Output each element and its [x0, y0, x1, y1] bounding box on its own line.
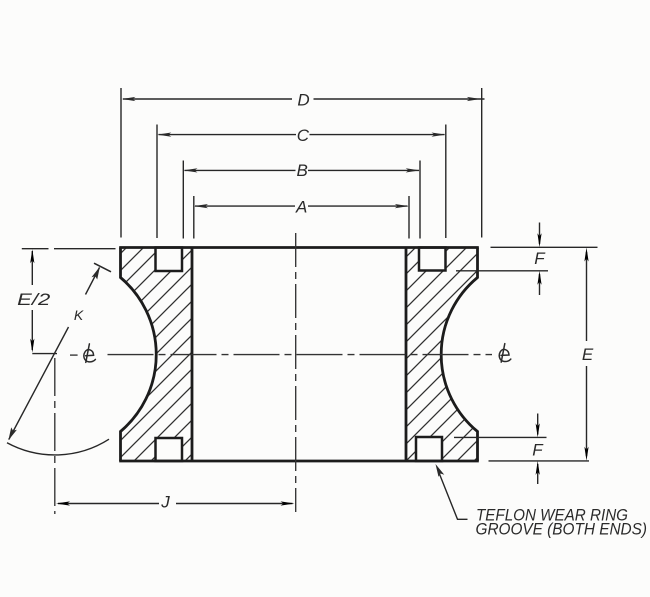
svg-text:K: K [74, 307, 84, 323]
svg-text:A: A [295, 198, 307, 217]
svg-text:D: D [297, 91, 309, 110]
svg-text:E: E [582, 345, 594, 364]
svg-text:B: B [297, 161, 308, 180]
svg-text:J: J [160, 493, 170, 512]
svg-text:F: F [532, 441, 544, 460]
svg-text:C: C [297, 126, 310, 145]
svg-text:GROOVE (BOTH ENDS): GROOVE (BOTH ENDS) [476, 520, 648, 539]
svg-text:F: F [534, 249, 546, 268]
svg-text:E/2: E/2 [17, 290, 51, 309]
